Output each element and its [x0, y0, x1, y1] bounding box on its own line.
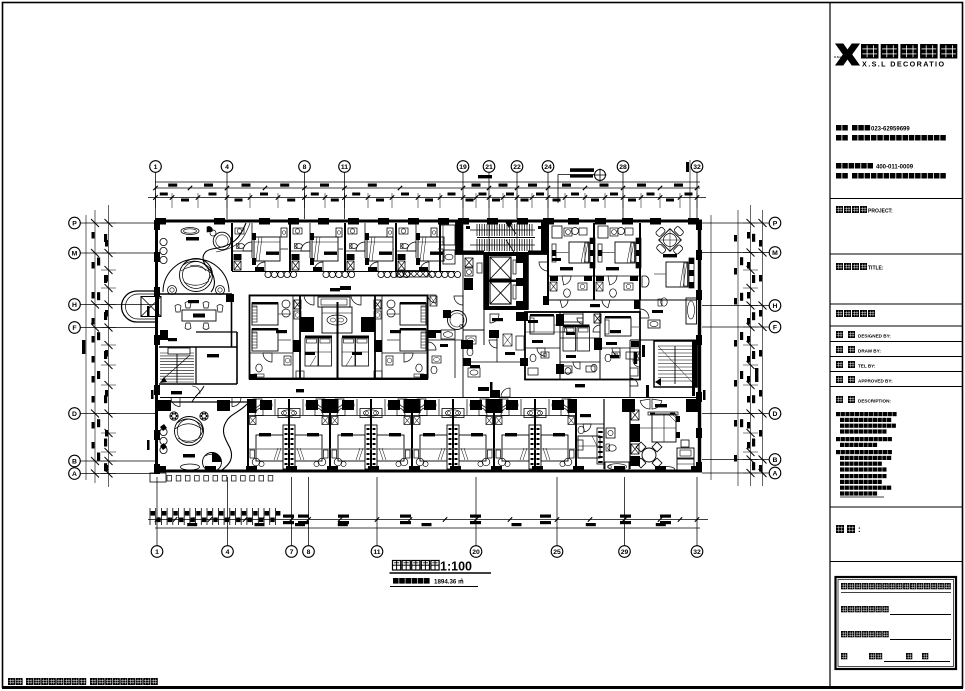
- svg-text:H: H: [72, 302, 77, 309]
- svg-text:TITLE:: TITLE:: [868, 266, 884, 272]
- svg-text:X.S.L DECORATIO: X.S.L DECORATIO: [862, 60, 945, 69]
- svg-text:APPROVED BY:: APPROVED BY:: [858, 379, 893, 384]
- svg-text:DRAW BY:: DRAW BY:: [858, 349, 881, 354]
- svg-text:11: 11: [341, 164, 348, 171]
- svg-text:B: B: [72, 458, 77, 465]
- svg-text:F: F: [773, 324, 777, 331]
- svg-text:21: 21: [485, 164, 493, 171]
- svg-text:8: 8: [303, 164, 307, 171]
- svg-text:D: D: [773, 411, 778, 418]
- svg-text:4: 4: [226, 549, 230, 556]
- svg-text:1: 1: [155, 549, 159, 556]
- svg-text:B: B: [773, 457, 778, 464]
- svg-text:DESCRIPTION:: DESCRIPTION:: [858, 399, 891, 404]
- svg-text:29: 29: [621, 549, 629, 556]
- svg-text:7: 7: [290, 549, 294, 556]
- svg-text:1:100: 1:100: [440, 560, 472, 574]
- svg-text:24: 24: [544, 164, 552, 171]
- svg-text:PROJECT:: PROJECT:: [868, 209, 893, 215]
- svg-text:4: 4: [225, 164, 229, 171]
- svg-text:32: 32: [693, 164, 701, 171]
- svg-text:A: A: [773, 470, 778, 477]
- svg-text:D: D: [72, 411, 77, 418]
- svg-text::: :: [858, 525, 861, 534]
- svg-text:X.S.L: X.S.L: [834, 55, 842, 59]
- svg-text:400-011-0009: 400-011-0009: [876, 165, 914, 171]
- svg-text:M: M: [772, 250, 778, 257]
- svg-text:1: 1: [154, 164, 158, 171]
- svg-text:25: 25: [553, 549, 561, 556]
- svg-text:32: 32: [693, 549, 701, 556]
- svg-text:20: 20: [472, 549, 480, 556]
- svg-text:8: 8: [307, 549, 311, 556]
- svg-text:TEL BY:: TEL BY:: [858, 364, 876, 369]
- svg-text:F: F: [72, 325, 76, 332]
- svg-text:A: A: [72, 471, 77, 478]
- svg-text:DESIGNED BY:: DESIGNED BY:: [858, 334, 891, 339]
- svg-text:19: 19: [459, 164, 467, 171]
- svg-text:023-62959699: 023-62959699: [871, 127, 910, 133]
- svg-text:11: 11: [373, 549, 380, 556]
- svg-text:P: P: [773, 220, 778, 227]
- svg-text:M: M: [72, 250, 78, 257]
- svg-text:28: 28: [619, 164, 627, 171]
- svg-text:P: P: [72, 220, 77, 227]
- svg-text:22: 22: [513, 164, 521, 171]
- svg-text:H: H: [773, 303, 778, 310]
